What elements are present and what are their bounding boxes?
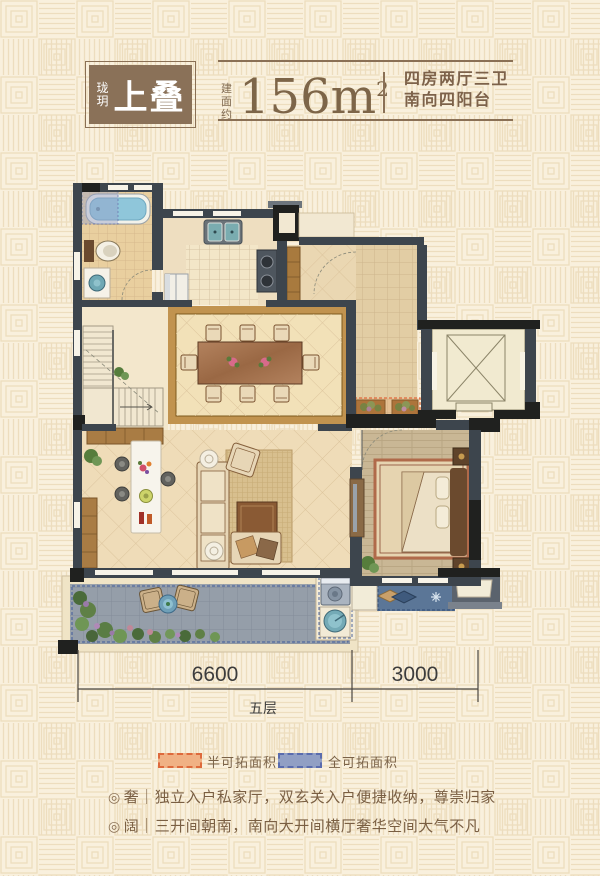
toilet-icon [84,240,120,262]
feature-bullet-icon: ◎ [108,789,121,805]
feature-text-2: 阔｜三开间朝南，南向大开间横厅奢华空间大气不凡 [124,818,481,835]
bar-table [131,441,161,533]
brand-logo-inner: 珑玥 上叠 [89,65,192,124]
laundry-basin-icon [320,607,350,637]
feature-bullet-icon: ◎ [108,818,121,834]
side-table [200,450,218,468]
plant-icon [92,456,102,466]
floor-label: 五层 [249,700,277,716]
feature-line-1: ◎奢｜独立入户私家厅，双玄关入户便捷收纳，尊崇归家 [108,786,496,807]
poster-root: 6600 3000 五层 珑玥 上叠 建面约 156m2 四房两厅三卫 南向四阳… [0,0,600,876]
stove-icon [257,250,277,292]
shelving [80,498,97,568]
chaise-sofa [231,532,281,564]
legend-label-fully-expandable: 全可拓面积 [328,752,398,771]
feature-line-2: ◎阔｜三开间朝南，南向大开间横厅奢华空间大气不凡 [108,815,480,836]
plant-icon [369,563,379,573]
header-divider [383,72,385,113]
legend-swatch-semi-expandable [158,753,202,768]
legend-swatch-fully-expandable [278,753,322,768]
header-rule-top [218,60,513,62]
unit-description: 四房两厅三卫 南向四阳台 [404,69,509,111]
elevator [432,329,525,411]
kitchen-sink-icon [204,220,242,244]
brand-name-small: 珑玥 [96,82,110,108]
dining-table [198,342,302,384]
floorplan: 6600 3000 五层 [0,0,600,876]
expandable-window-overlay [82,191,118,224]
terrace-table [159,595,177,613]
feature-text-1: 奢｜独立入户私家厅，双玄关入户便捷收纳，尊崇归家 [124,789,496,806]
brand-name-large: 上叠 [114,70,186,119]
fridge-icon [165,274,188,302]
dimension-left: 6600 [192,663,239,686]
washing-machine-icon [321,578,350,605]
unit-desc-line2: 南向四阳台 [404,90,509,111]
area-number: 156m [239,69,376,125]
side-table [205,542,223,560]
dimension-right: 3000 [392,663,439,686]
area-value: 156m2 [239,63,389,123]
unit-desc-line1: 四房两厅三卫 [404,69,509,90]
brand-logo: 珑玥 上叠 [85,61,196,128]
terrace [62,576,358,652]
legend-label-semi-expandable: 半可拓面积 [207,752,277,771]
bed-icon [402,468,467,556]
area-prefix: 建面约 [220,83,233,122]
washbasin-icon [84,268,110,298]
